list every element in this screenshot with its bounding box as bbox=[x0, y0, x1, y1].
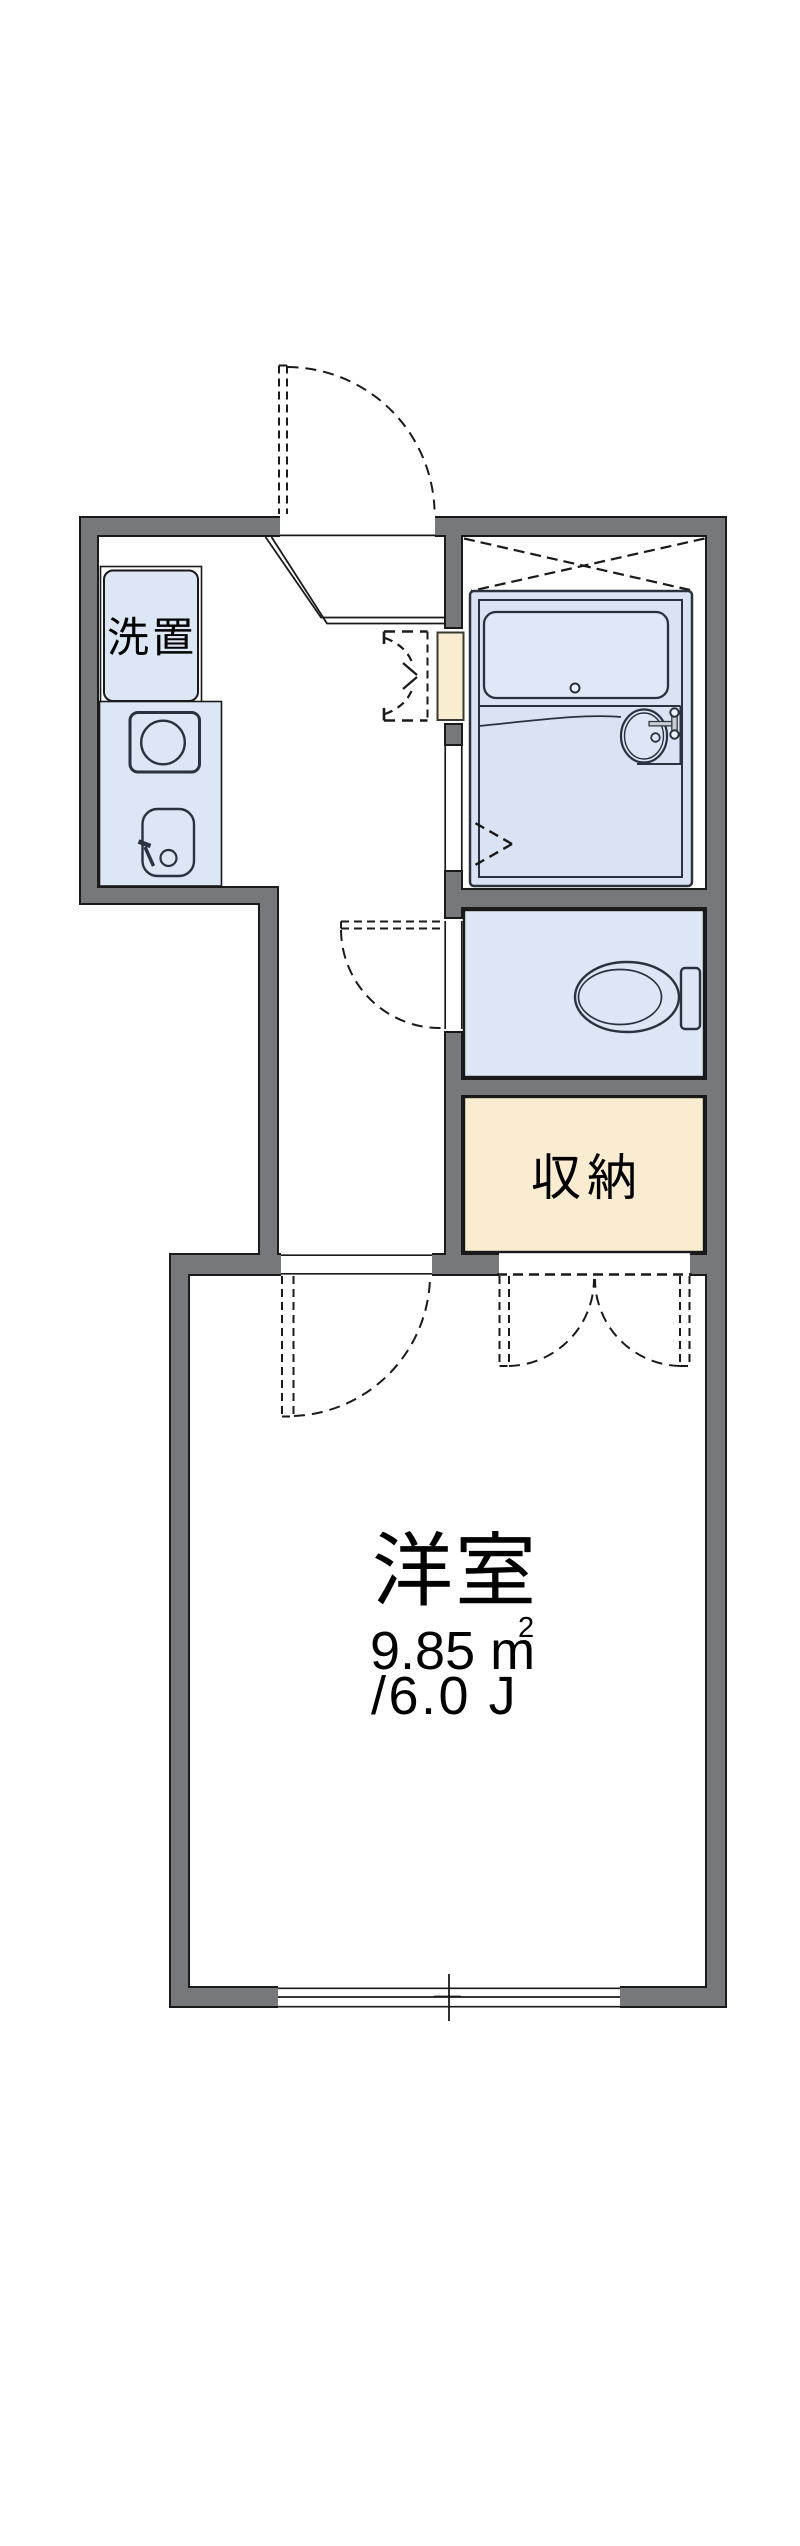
svg-text:/6.0 J: /6.0 J bbox=[371, 1666, 518, 1726]
svg-text:2: 2 bbox=[518, 1612, 534, 1644]
